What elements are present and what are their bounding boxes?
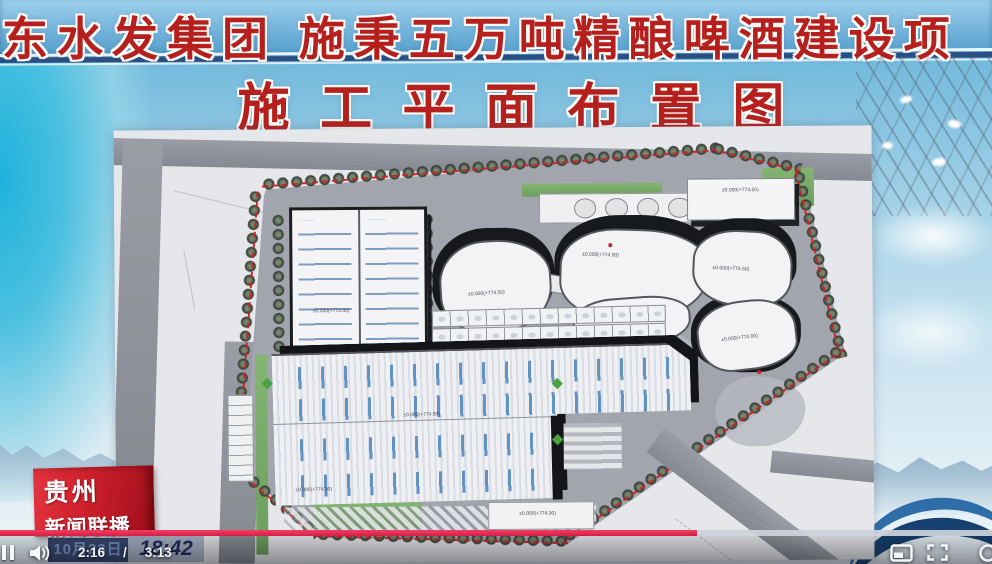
- time-separator: /: [123, 545, 127, 560]
- volume-button[interactable]: [30, 545, 51, 564]
- partial-circle-icon: [978, 543, 992, 563]
- cloud: [860, 295, 992, 370]
- building-rect-b: ±0.000(+774.50): [687, 178, 795, 221]
- plan-road-branch: [770, 450, 874, 482]
- building-label: ±0.000(+774.50): [582, 252, 619, 259]
- fullscreen-icon: [927, 544, 948, 561]
- skylight-row: [278, 356, 683, 389]
- warehouse-divider: [551, 415, 563, 499]
- scaffold-lattice: [856, 56, 992, 216]
- miniplayer-icon: [890, 544, 913, 562]
- miniplayer-button[interactable]: [890, 544, 913, 564]
- building-label: ±0.000(+774.00): [295, 486, 332, 493]
- duration: 3:13: [145, 545, 172, 560]
- building-label: ±0.000(+774.00): [519, 511, 556, 517]
- time-display: 2:16 / 3:13: [78, 545, 172, 560]
- channel-badge-line1: 贵州: [43, 470, 154, 509]
- video-frame: 东水发集团 施秉五万吨精酿啤酒建设项 施 工 平 面 布 置 图: [0, 0, 992, 564]
- volume-icon: [30, 545, 51, 561]
- building-label: ±0.000(+774.50): [712, 265, 749, 273]
- tank: [574, 198, 597, 218]
- building-label: ±0.000(+774.50): [468, 289, 505, 297]
- pause-button[interactable]: [2, 545, 14, 560]
- channel-badge: 贵州 新闻联播: [33, 465, 155, 536]
- pause-icon: [2, 545, 6, 560]
- red-marker-dot: [757, 370, 761, 374]
- loading-dock-hatch: [564, 423, 622, 469]
- building-label: ±0.000(+774.50): [403, 411, 440, 418]
- building-label: ±0.000(+774.00): [721, 333, 758, 343]
- settings-button[interactable]: [978, 543, 992, 564]
- plan-road-left: [113, 140, 163, 511]
- current-time: 2:16: [78, 545, 105, 560]
- pause-icon: [10, 545, 14, 560]
- fullscreen-button[interactable]: [927, 544, 948, 564]
- billboard-title: 东水发集团 施秉五万吨精酿啤酒建设项: [2, 3, 992, 69]
- parking-column: [227, 395, 254, 482]
- red-marker-dot: [608, 243, 612, 247]
- building-label: ±0.000(+774.00): [313, 308, 350, 314]
- building-label: ±0.000(+774.50): [722, 187, 759, 193]
- survey-line: [183, 250, 195, 309]
- cloud: [868, 205, 992, 267]
- sewage-plant-box: ±0.000(+774.00): [488, 501, 594, 530]
- building-blob-3: ±0.000(+774.50): [691, 228, 794, 308]
- white-bird: [882, 142, 893, 149]
- site-plan-drawing: ±0.000(+774.00) ±0.000(+774.50) ±0.000(+…: [113, 125, 874, 564]
